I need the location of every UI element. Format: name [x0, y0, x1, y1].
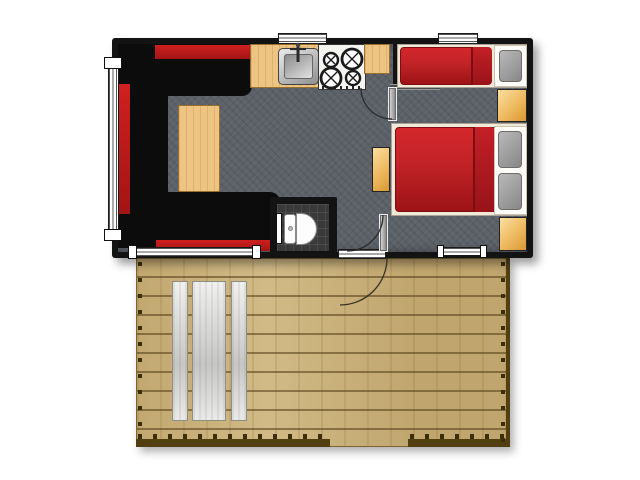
window-left-cap-top [104, 57, 122, 69]
deck-railing-right [506, 258, 510, 447]
nightstand [372, 147, 390, 192]
sink-basin [284, 54, 313, 79]
window-left-wall [108, 60, 119, 240]
wardrobe-cabinet-top [497, 89, 527, 122]
coffee-table [178, 105, 220, 192]
deck-railing-posts-bottom-right [410, 434, 508, 439]
window-above-single-bed [438, 33, 478, 44]
deck-railing-posts-bottom-left [138, 434, 328, 439]
window-bottom-living-cap-left [128, 245, 137, 259]
deck-edge-posts-left [138, 262, 142, 434]
deck-railing-bottom-left [136, 439, 330, 447]
entrance-doorway [338, 249, 386, 259]
window-bottom-bedroom-cap-right [480, 245, 487, 258]
double-bed-pillow-2 [498, 173, 522, 210]
window-above-sink [278, 33, 327, 44]
picnic-bench-right [231, 281, 247, 421]
picnic-table [192, 281, 226, 421]
window-bottom-living [133, 247, 257, 257]
floorplan-canvas [0, 0, 640, 480]
interior-door-leaf [389, 88, 396, 120]
deck-railing-bottom-right [408, 439, 510, 447]
window-left-cap-bottom [104, 229, 122, 241]
double-bed-pillow-1 [498, 131, 522, 168]
picnic-bench-left [172, 281, 188, 421]
single-bed-pillow [499, 50, 522, 82]
wardrobe-cabinet-bottom [499, 217, 527, 251]
sofa-cushion-left [118, 84, 130, 214]
window-bottom-bedroom-cap-left [437, 245, 444, 258]
sofa-cushion-top [155, 45, 252, 59]
single-bed-mattress [400, 47, 472, 85]
deck-railing-posts-right [501, 262, 505, 442]
window-bottom-bedroom [441, 247, 483, 256]
window-bottom-living-cap-right [252, 245, 261, 259]
stove [318, 44, 366, 90]
single-bed-fold [471, 47, 492, 85]
toilet-flush-button [288, 226, 293, 231]
double-bed-fold [473, 127, 494, 212]
kitchen-side-counter [364, 44, 390, 74]
bathroom-door [276, 213, 282, 244]
entrance-door-leaf [380, 215, 387, 251]
stove-knobs [322, 86, 362, 89]
